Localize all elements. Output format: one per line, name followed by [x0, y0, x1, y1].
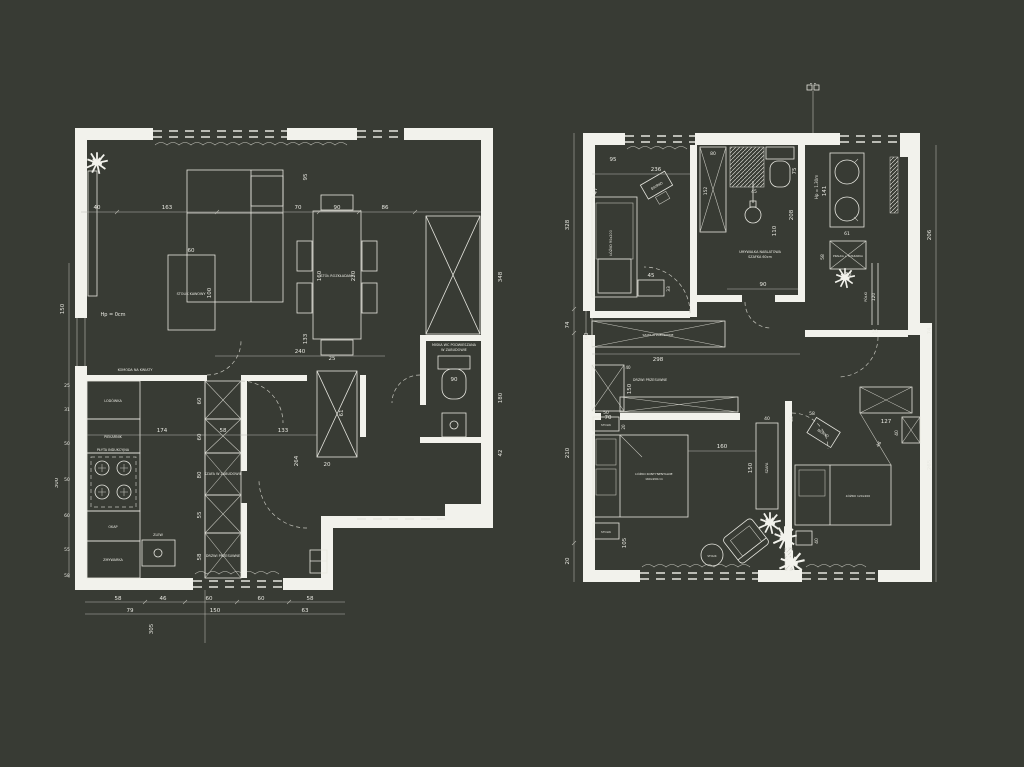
dimension-chain-bottom: 58 46 60 60 58 79 150 63 305	[85, 590, 345, 643]
svg-text:55: 55	[197, 511, 203, 518]
svg-text:298: 298	[653, 357, 664, 363]
svg-text:133: 133	[278, 428, 289, 434]
windows	[586, 136, 900, 579]
corridor-storage: SZAFA W ZABUDOWIE 60 298 70 150 40 DRZWI…	[584, 321, 878, 449]
svg-text:163: 163	[162, 205, 173, 211]
svg-text:60: 60	[197, 397, 203, 404]
svg-text:33: 33	[666, 286, 672, 292]
svg-text:BIURKO: BIURKO	[817, 428, 830, 438]
armchair	[722, 517, 770, 564]
svg-text:70: 70	[295, 205, 302, 211]
svg-text:40: 40	[625, 365, 631, 370]
svg-text:55: 55	[64, 547, 70, 553]
svg-text:60: 60	[258, 596, 265, 602]
svg-text:60: 60	[197, 433, 203, 440]
svg-text:150: 150	[627, 383, 633, 394]
svg-text:PŁYTA INDUKCYJNA: PŁYTA INDUKCYJNA	[97, 448, 130, 452]
svg-text:UMYWALKA NABLATOWA: UMYWALKA NABLATOWA	[739, 250, 782, 254]
door-swings	[207, 341, 307, 528]
svg-text:61: 61	[339, 410, 345, 417]
windows	[77, 131, 445, 587]
svg-text:ZLEW: ZLEW	[153, 533, 163, 537]
dim-label: 133	[303, 333, 309, 344]
svg-text:20: 20	[324, 462, 331, 468]
svg-text:60: 60	[584, 332, 590, 339]
dimension-chain-left: 150 25 31 50 50 60 55 58 300	[55, 263, 70, 579]
svg-text:141: 141	[822, 186, 828, 197]
svg-text:SZAFA W ZABUDOWIE: SZAFA W ZABUDOWIE	[643, 333, 674, 337]
radiator-wave-bottom-right	[806, 565, 866, 568]
svg-text:SZAFA W ZABUDOWIE: SZAFA W ZABUDOWIE	[204, 472, 242, 476]
svg-text:264: 264	[294, 455, 300, 466]
dimension-chain-left: 328 74 210 20	[565, 133, 576, 582]
dim-label: 95	[303, 173, 309, 180]
svg-text:PÓŁKI: PÓŁKI	[863, 292, 868, 302]
plant-icon	[835, 268, 855, 288]
svg-text:STOLIK: STOLIK	[601, 423, 611, 427]
svg-text:SZAFA: SZAFA	[765, 462, 769, 473]
svg-text:74: 74	[927, 327, 933, 334]
svg-text:58: 58	[220, 428, 227, 434]
second-bedroom: ŁÓŻKO 120x200 BIURKO 50 58 127 40 46 40	[773, 387, 920, 576]
svg-text:50: 50	[64, 441, 70, 447]
kitchen-counters: LODÓWKA PIEKARNIK PŁYTA INDUKCYJNA OKAP …	[87, 381, 327, 578]
svg-text:20: 20	[872, 329, 878, 335]
svg-text:208: 208	[789, 209, 795, 220]
svg-text:B B: B B	[810, 83, 817, 85]
svg-text:KOMODA NA KWIATY: KOMODA NA KWIATY	[118, 368, 154, 372]
svg-text:174: 174	[157, 428, 168, 434]
svg-text:328: 328	[565, 219, 571, 230]
svg-text:150: 150	[210, 608, 221, 614]
svg-text:W ZABUDOWIE: W ZABUDOWIE	[441, 348, 467, 352]
svg-text:58: 58	[64, 573, 70, 579]
svg-text:ŁÓŻKO KONTYNENTALNE: ŁÓŻKO KONTYNENTALNE	[634, 471, 672, 476]
svg-text:STOLIK: STOLIK	[707, 554, 716, 558]
svg-text:160x200cm: 160x200cm	[645, 477, 663, 481]
svg-text:300: 300	[55, 477, 60, 488]
dim-label: 100	[207, 287, 213, 298]
svg-text:45: 45	[751, 189, 757, 195]
radiator-wave-top	[627, 147, 687, 150]
exterior-walls	[75, 128, 493, 590]
svg-text:58: 58	[820, 254, 826, 260]
tv-sideboard	[88, 171, 97, 296]
svg-text:47: 47	[593, 187, 599, 194]
svg-text:ZMYWARKA: ZMYWARKA	[103, 558, 123, 562]
svg-text:61: 61	[844, 231, 850, 237]
left-floor-plan: STOLIK KAWOWY 60 100 STÓŁ ROZKŁADANY 160…	[55, 113, 515, 658]
svg-text:LODÓWKA: LODÓWKA	[104, 398, 122, 403]
svg-text:31: 31	[64, 407, 70, 413]
svg-text:348: 348	[498, 271, 504, 282]
svg-text:STOLIK: STOLIK	[601, 530, 611, 534]
plant-icon	[86, 152, 108, 174]
svg-text:120: 120	[871, 293, 877, 302]
dim-label: 160	[317, 270, 323, 281]
svg-text:Hp = 1.30m: Hp = 1.30m	[814, 175, 819, 199]
svg-text:74: 74	[565, 321, 571, 328]
svg-text:ŁÓŻKO 120x200: ŁÓŻKO 120x200	[845, 493, 871, 498]
svg-text:50: 50	[603, 410, 609, 416]
svg-text:180: 180	[498, 392, 504, 403]
svg-text:152: 152	[703, 187, 709, 196]
desk: BIURKO	[807, 417, 840, 447]
svg-text:79: 79	[127, 608, 134, 614]
svg-text:160: 160	[717, 444, 728, 450]
svg-text:80: 80	[710, 151, 716, 157]
svg-text:60: 60	[64, 513, 70, 519]
svg-text:BIURKO: BIURKO	[650, 181, 663, 191]
svg-text:25: 25	[64, 383, 70, 389]
svg-text:206: 206	[927, 229, 933, 240]
svg-text:20: 20	[565, 557, 571, 564]
svg-text:PRALKA + SUSZARKA: PRALKA + SUSZARKA	[833, 254, 863, 258]
coffee-table: STOLIK KAWOWY 60 100	[168, 248, 215, 330]
svg-text:SZAFKA 60cm: SZAFKA 60cm	[748, 255, 772, 259]
dim-label: 60	[188, 248, 195, 254]
sofa	[187, 170, 283, 302]
radiator-wave-bottom-left	[642, 565, 750, 568]
svg-text:DRZWI PRZESUWNE: DRZWI PRZESUWNE	[633, 378, 667, 382]
svg-text:63: 63	[302, 608, 309, 614]
svg-text:75: 75	[792, 167, 798, 174]
coffee-table-label: STOLIK KAWOWY	[177, 292, 207, 296]
svg-text:210: 210	[565, 447, 571, 458]
exterior-walls	[583, 133, 932, 582]
svg-text:50: 50	[789, 416, 795, 422]
svg-text:150: 150	[748, 462, 754, 473]
svg-text:58: 58	[809, 411, 815, 417]
svg-text:42: 42	[498, 450, 504, 457]
svg-text:80: 80	[197, 471, 203, 478]
radiator-wave-top	[155, 143, 347, 146]
svg-text:46: 46	[875, 440, 883, 448]
dining-table: STÓŁ ROZKŁADANY 160 220 95 133	[297, 173, 377, 355]
svg-text:58: 58	[115, 596, 122, 602]
svg-text:265: 265	[927, 459, 933, 470]
svg-text:240: 240	[295, 349, 306, 355]
svg-text:40: 40	[814, 538, 820, 544]
svg-text:105: 105	[622, 537, 628, 548]
svg-text:ŁÓŻKO 90x200: ŁÓŻKO 90x200	[608, 230, 613, 256]
dining-table-label: STÓŁ ROZKŁADANY	[320, 273, 354, 278]
svg-text:46: 46	[160, 596, 167, 602]
level-label: Hp = 0cm	[100, 312, 125, 318]
hall-cabinet: KOMODA NA KWIATY 61 20 240 25	[118, 349, 385, 468]
svg-text:40: 40	[764, 416, 770, 422]
drawing-canvas: STOLIK KAWOWY 60 100 STÓŁ ROZKŁADANY 160…	[0, 0, 1024, 767]
svg-text:40: 40	[94, 205, 101, 211]
svg-text:20: 20	[621, 424, 626, 430]
cooker-hood-outline	[91, 457, 136, 507]
right-floor-plan: B B	[560, 83, 940, 603]
svg-text:25: 25	[329, 356, 336, 362]
svg-text:86: 86	[382, 205, 389, 211]
svg-text:58: 58	[197, 553, 203, 560]
svg-text:MISKA WC PODWIESZANA: MISKA WC PODWIESZANA	[432, 343, 477, 347]
svg-text:90: 90	[451, 377, 458, 383]
svg-text:236: 236	[651, 167, 662, 173]
svg-text:90: 90	[760, 282, 767, 288]
svg-text:60: 60	[206, 596, 213, 602]
kids-room: ŁÓŻKO 90x200 BIURKO 45 33 236 95 47 80 1…	[592, 147, 726, 313]
svg-text:45: 45	[648, 273, 655, 279]
svg-text:110: 110	[772, 225, 778, 236]
desk: BIURKO	[640, 171, 677, 208]
storage-column: SZAFA W ZABUDOWIE DRZWI PRZESUWNE 60 60 …	[197, 381, 242, 578]
svg-text:58: 58	[307, 596, 314, 602]
utility-room: 141 61 Hp = 1.30m PRALKA + SUSZARKA 70 5…	[814, 153, 898, 335]
section-marker: B B	[807, 83, 819, 133]
svg-text:305: 305	[149, 623, 155, 634]
plant-icon	[759, 512, 781, 534]
svg-text:90: 90	[334, 205, 341, 211]
svg-text:127: 127	[881, 419, 892, 425]
svg-text:150: 150	[60, 303, 66, 314]
svg-text:PIEKARNIK: PIEKARNIK	[104, 435, 123, 439]
dim-label: 220	[351, 270, 357, 281]
svg-text:OKAP: OKAP	[108, 525, 117, 529]
svg-text:DRZWI PRZESUWNE: DRZWI PRZESUWNE	[206, 554, 240, 558]
svg-text:50: 50	[64, 477, 70, 483]
master-bedroom: ŁÓŻKO KONTYNENTALNE 160x200cm STOLIK 50 …	[593, 410, 781, 566]
svg-text:40: 40	[894, 430, 900, 436]
svg-text:95: 95	[610, 157, 617, 163]
